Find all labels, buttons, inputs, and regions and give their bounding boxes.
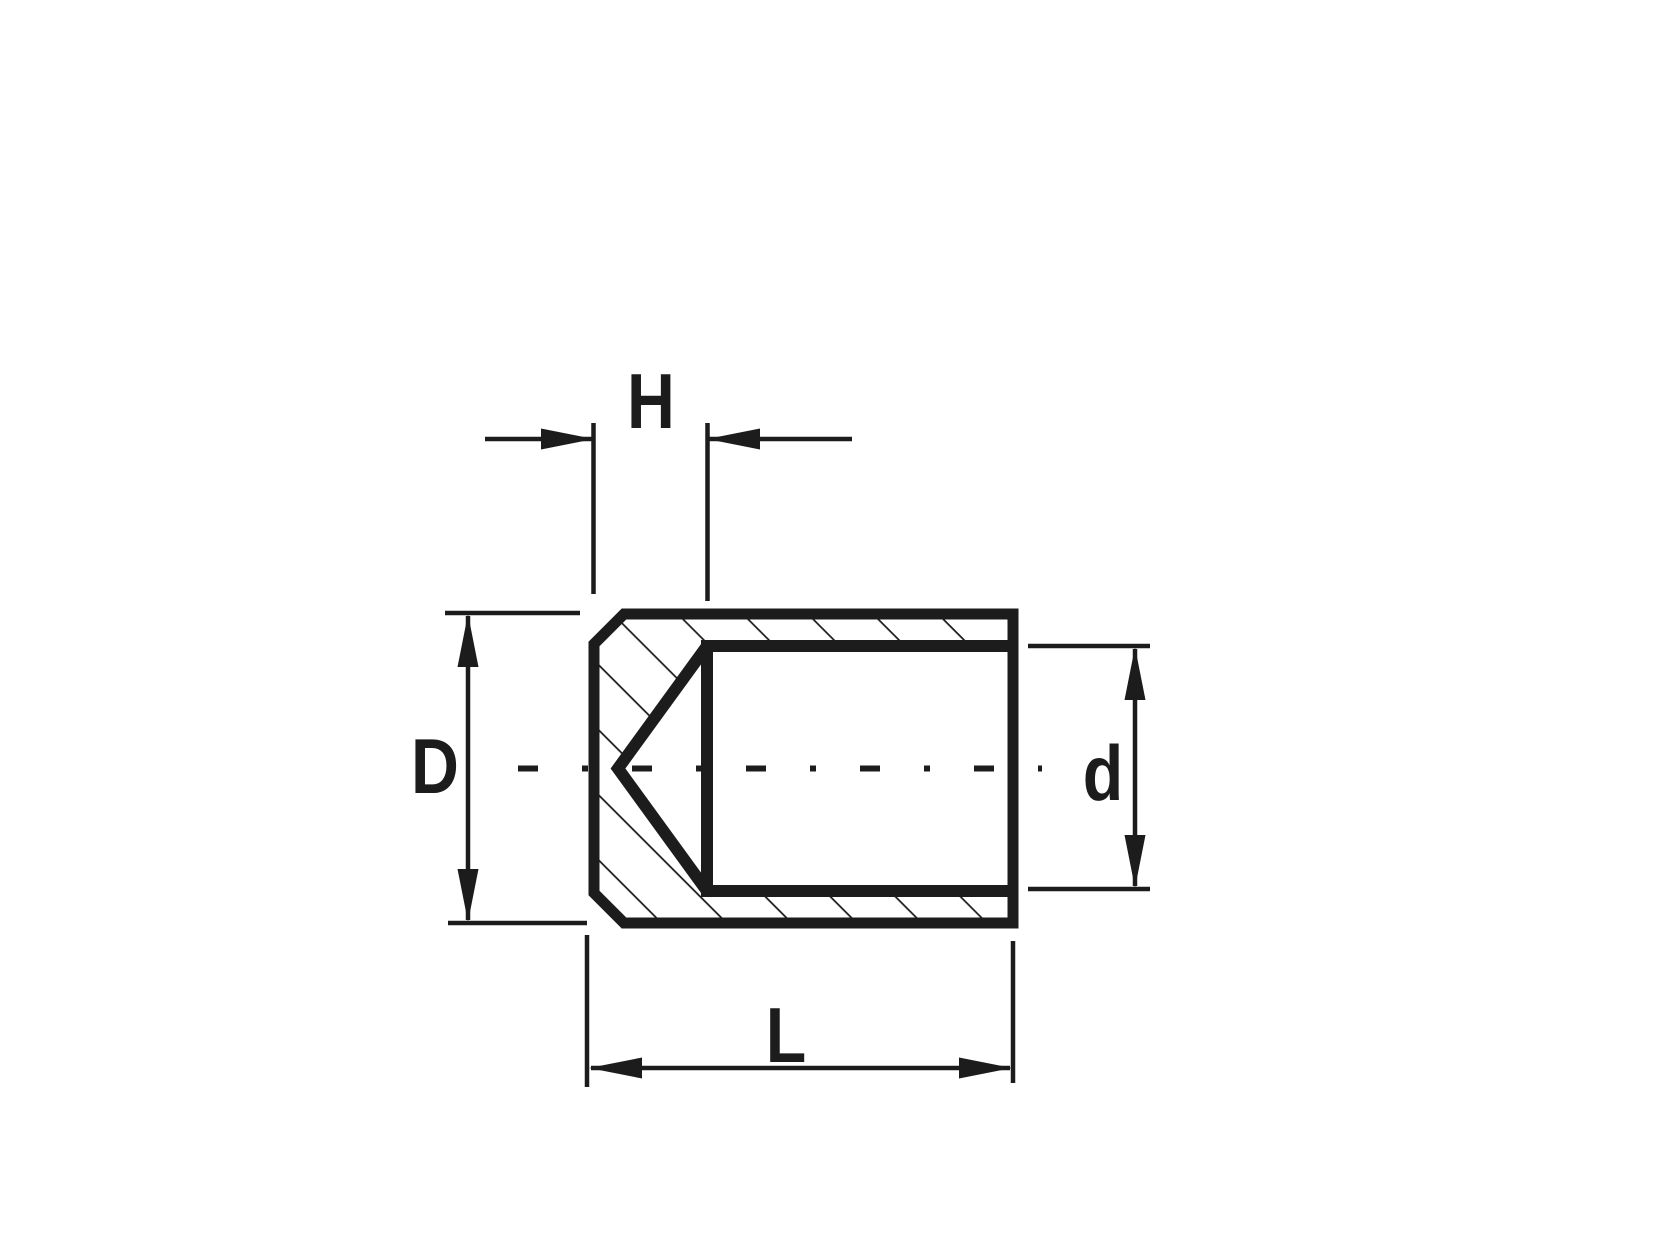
section-hatching — [594, 614, 1013, 923]
arrowhead — [541, 429, 594, 450]
dimension-d-outer: D — [411, 613, 587, 923]
arrowhead — [458, 869, 479, 922]
dimension-label-h: H — [627, 358, 675, 445]
dimension-label-d-bore: d — [1083, 730, 1124, 817]
dimension-h: H — [485, 358, 852, 601]
arrowhead — [707, 429, 760, 450]
arrowhead — [458, 614, 479, 667]
dimension-l: L — [587, 935, 1013, 1087]
drawing-canvas: H D d L — [0, 0, 1680, 1260]
dimension-label-d-outer: D — [411, 723, 459, 810]
technical-section-drawing: H D d L — [0, 0, 1680, 1260]
dimension-label-l: L — [766, 992, 807, 1079]
arrowhead — [1125, 835, 1146, 888]
arrowhead — [959, 1058, 1012, 1079]
dimension-d-bore: d — [1028, 646, 1150, 889]
arrowhead — [589, 1058, 642, 1079]
arrowhead — [1125, 647, 1146, 700]
